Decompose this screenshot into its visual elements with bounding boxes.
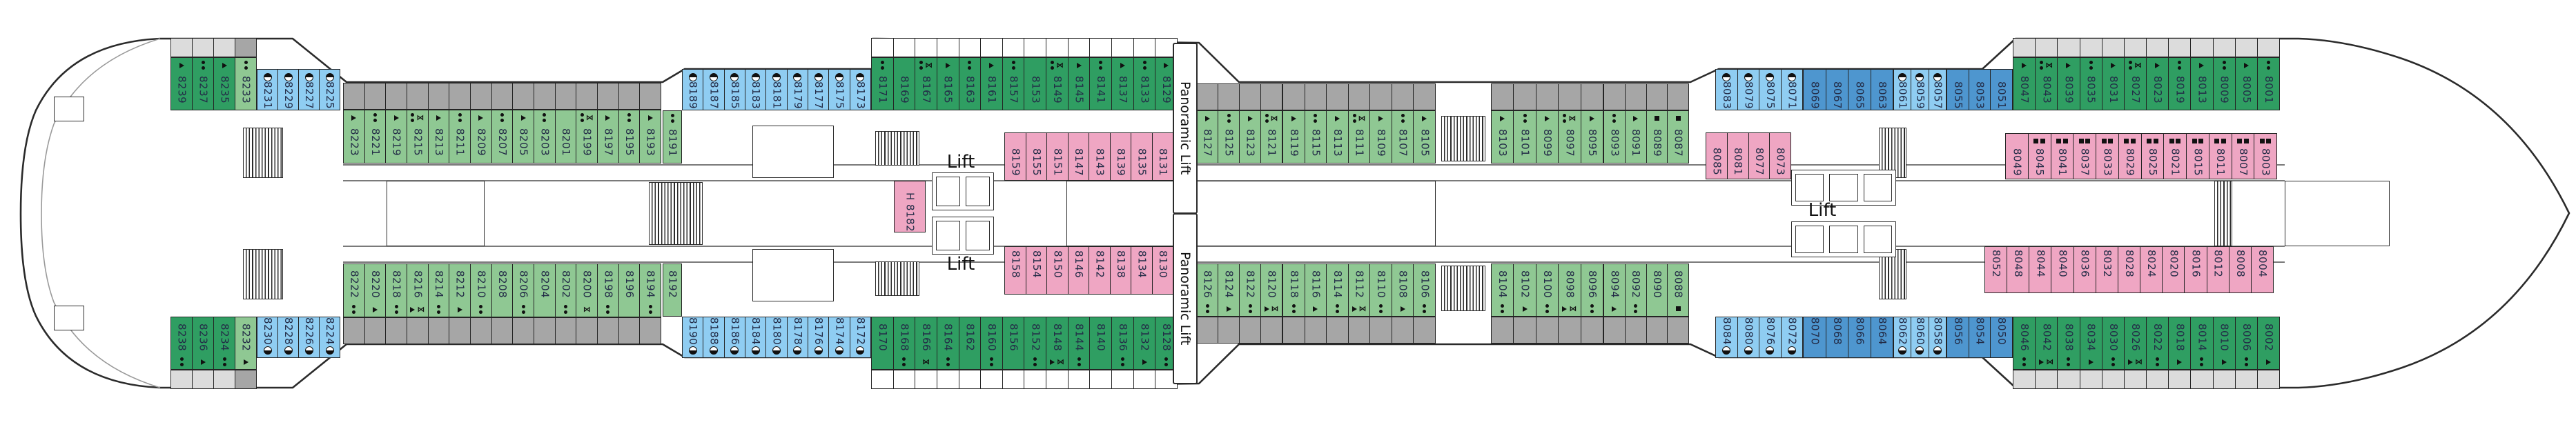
cabin-number: 8196 [624, 270, 634, 298]
cabin-8181[interactable]: 8181 [765, 70, 786, 110]
cabin-8094[interactable]: 8094 [1604, 264, 1625, 316]
cabin-8106[interactable]: 8106 [1413, 264, 1435, 316]
cabin-8079[interactable]: 8079 [1737, 70, 1759, 110]
cabin-8198[interactable]: 8198 [597, 264, 618, 317]
cabin-8002[interactable]: 8002 [2257, 317, 2279, 369]
connecting-doors-icon: ⋈ [586, 114, 594, 121]
cabin-8130[interactable]: 8130 [1152, 247, 1173, 294]
cabin-8091[interactable]: 8091 [1625, 111, 1646, 163]
cabin-8040[interactable]: 8040 [2051, 247, 2073, 292]
cabin-8118[interactable]: 8118 [1283, 264, 1305, 316]
cabin-8059[interactable]: 8059 [1911, 70, 1928, 110]
cabin-8225[interactable]: 8225 [319, 70, 340, 110]
cabin-number-wrap: 8138 [1115, 247, 1126, 282]
cabin-number-wrap: 8121 [1267, 123, 1277, 163]
cabin-8223[interactable]: 8223 [344, 110, 364, 163]
cabin-8124[interactable]: 8124 [1218, 264, 1239, 316]
cabin-8015[interactable]: 8015 [2186, 134, 2209, 179]
lift-shafts-icon [932, 217, 994, 255]
cabin-8211[interactable]: 8211 [449, 110, 470, 163]
cabin-8065[interactable]: 8065 [1848, 70, 1871, 110]
cabin-H8182[interactable]: H 8182 [895, 181, 925, 232]
cabin-8032[interactable]: 8032 [2096, 247, 2118, 292]
cabin-8029[interactable]: 8029 [2118, 134, 2141, 179]
stairs-icon [243, 128, 283, 178]
cabin-8145[interactable]: 8145 [1068, 58, 1090, 110]
cabin-8142[interactable]: 8142 [1089, 247, 1110, 294]
cabin-8189[interactable]: 8189 [683, 70, 703, 110]
cabin-number-wrap: 8055 [1953, 81, 1963, 110]
cabin-8195[interactable]: 8195 [618, 110, 640, 163]
balcony [639, 83, 661, 109]
cabin-8137[interactable]: 8137 [1111, 58, 1133, 110]
cabin-8135[interactable]: 8135 [1131, 133, 1152, 180]
cabin-8047[interactable]: 8047 [2013, 58, 2035, 110]
cabin-8150[interactable]: 8150 [1046, 247, 1068, 294]
cabin-8233[interactable]: 8233 [235, 58, 256, 110]
aft-top-balcony-cabins: 822382218219⋈821582138211820982078205820… [343, 110, 661, 163]
balcony [1239, 84, 1260, 110]
cabin-8051[interactable]: 8051 [1990, 70, 2012, 110]
cabin-8037[interactable]: 8037 [2073, 134, 2096, 179]
triangle-icon [1545, 116, 1550, 121]
balcony [980, 370, 1002, 388]
cabin-number: 8047 [2019, 76, 2029, 103]
cabin-8020[interactable]: 8020 [2162, 247, 2184, 292]
cabin-8092[interactable]: 8092 [1625, 264, 1646, 316]
cabin-8034[interactable]: 8034 [2080, 317, 2102, 369]
cabin-8231[interactable]: 8231 [257, 70, 277, 110]
balcony [1348, 317, 1370, 343]
cabin-number: 8133 [1140, 76, 1150, 103]
cabin-8224[interactable]: 8224 [319, 317, 340, 357]
cabin-8024[interactable]: 8024 [2140, 247, 2162, 292]
cabin-8229[interactable]: 8229 [277, 70, 298, 110]
cabin-8022[interactable]: 8022 [2146, 317, 2168, 369]
cabin-8131[interactable]: 8131 [1152, 133, 1173, 180]
cabin-8164[interactable]: 8164 [937, 317, 959, 369]
cabin-8202[interactable]: 8202 [555, 264, 576, 317]
cabin-8230[interactable]: 8230 [257, 317, 277, 357]
fwd-top-balcony-cabins-d: 8093809180898087 [1603, 110, 1689, 163]
cabin-8165[interactable]: 8165 [937, 58, 959, 110]
cabin-8084[interactable]: 8084 [1716, 317, 1737, 357]
cabin-8083[interactable]: 8083 [1716, 70, 1737, 110]
cabin-8163[interactable]: 8163 [959, 58, 981, 110]
cabin-8210[interactable]: 8210 [470, 264, 491, 317]
balcony [1536, 317, 1558, 343]
cabin-8179[interactable]: 8179 [787, 70, 808, 110]
cabin-8166[interactable]: 8166⋈ [915, 317, 937, 369]
two-dots-icon [606, 305, 609, 314]
cabin-8174[interactable]: 8174 [828, 317, 849, 357]
cabin-8097[interactable]: ⋈8097 [1558, 111, 1580, 163]
cabin-8067[interactable]: 8067 [1826, 70, 1848, 110]
cabin-8116[interactable]: 8116 [1305, 264, 1327, 316]
cabin-8226[interactable]: 8226 [298, 317, 319, 357]
cabin-8012[interactable]: 8012 [2207, 247, 2229, 292]
cabin-8183[interactable]: 8183 [745, 70, 765, 110]
cabin-8089[interactable]: 8089 [1646, 111, 1668, 163]
cabin-8212[interactable]: 8212 [449, 264, 470, 317]
cabin-number: 8227 [304, 81, 314, 109]
cabin-8218[interactable]: 8218 [385, 264, 407, 317]
cabin-8066[interactable]: 8066 [1848, 317, 1871, 357]
cabin-8035[interactable]: 8035 [2080, 58, 2102, 110]
cabin-8161[interactable]: 8161 [980, 58, 1002, 110]
cabin-8178[interactable]: 8178 [787, 317, 808, 357]
cabin-8076[interactable]: 8076 [1759, 317, 1781, 357]
cabin-8011[interactable]: 8011 [2209, 134, 2232, 179]
cabin-8200[interactable]: 8200⋈ [576, 264, 597, 317]
cabin-8019[interactable]: 8019 [2168, 58, 2190, 110]
cabin-8003[interactable]: 8003 [2254, 134, 2276, 179]
cabin-8023[interactable]: 8023 [2146, 58, 2168, 110]
cabin-8025[interactable]: 8025 [2141, 134, 2164, 179]
cabin-8055[interactable]: 8055 [1947, 70, 1969, 110]
cabin-8050[interactable]: 8050 [1990, 317, 2012, 357]
cabin-number: 8138 [1115, 250, 1126, 278]
cabin-8061[interactable]: 8061 [1894, 70, 1911, 110]
cabin-8090[interactable]: 8090 [1646, 264, 1668, 316]
cabin-8171[interactable]: 8171 [872, 58, 893, 110]
cabin-8109[interactable]: 8109 [1369, 111, 1392, 163]
cabin-8030[interactable]: 8030 [2102, 317, 2124, 369]
square-icon [1655, 116, 1659, 121]
cabin-8007[interactable]: 8007 [2232, 134, 2254, 179]
cabin-8186[interactable]: 8186 [724, 317, 745, 357]
cabin-8062[interactable]: 8062 [1894, 317, 1911, 357]
cabin-8196[interactable]: 8196 [618, 264, 640, 317]
cabin-icons [968, 61, 971, 70]
cabin-8041[interactable]: 8041 [2051, 134, 2074, 179]
cabin-number-wrap: 8036 [2080, 247, 2090, 281]
balcony [1492, 84, 1513, 110]
cabin-8122[interactable]: 8122 [1239, 264, 1260, 316]
cabin-8005[interactable]: 8005 [2235, 58, 2257, 110]
two-dots-icon [1379, 304, 1383, 313]
cabin-8013[interactable]: 8013 [2190, 58, 2212, 110]
cabin-8008[interactable]: 8008 [2229, 247, 2251, 292]
cabin-8009[interactable]: 8009 [2213, 58, 2235, 110]
cabin-8010[interactable]: 8010 [2213, 317, 2235, 369]
cabin-8110[interactable]: 8110 [1369, 264, 1392, 316]
cabin-number-wrap: 8115 [1310, 123, 1320, 163]
cabin-8121[interactable]: ⋈8121 [1260, 111, 1282, 163]
cabin-8156[interactable]: 8156 [1002, 317, 1024, 369]
cabin-8038[interactable]: 8038 [2057, 317, 2079, 369]
cabin-icons [1012, 61, 1015, 70]
cabin-number: 8058 [1932, 317, 1942, 345]
cabin-8068[interactable]: 8068 [1826, 317, 1848, 357]
cabin-number: 8070 [1809, 317, 1819, 345]
cabin-8172[interactable]: 8172 [850, 317, 870, 357]
cabin-number: 8198 [603, 270, 613, 298]
cabin-8064[interactable]: 8064 [1871, 317, 1893, 357]
cabin-8096[interactable]: 8096 [1581, 264, 1603, 316]
cabin-icons [835, 72, 843, 81]
two-dots-icon [411, 113, 414, 122]
cabin-8112[interactable]: 8112⋈ [1348, 264, 1370, 316]
cabin-8070[interactable]: 8070 [1804, 317, 1826, 357]
cabin-8139[interactable]: 8139 [1110, 133, 1131, 180]
cabin-8042[interactable]: 8042⋈ [2035, 317, 2057, 369]
fwd-bottom-balcony-cabins-c: 8104810281008098⋈8096 [1491, 264, 1603, 317]
balcony [491, 318, 513, 344]
cabin-8099[interactable]: 8099 [1536, 111, 1558, 163]
cabin-8149[interactable]: ⋈8149 [1046, 58, 1068, 110]
cabin-8205[interactable]: 8205 [512, 110, 534, 163]
cabin-8073[interactable]: 8073 [1769, 133, 1790, 179]
cabin-8085[interactable]: 8085 [1706, 133, 1727, 179]
cabin-8214[interactable]: 8214 [428, 264, 449, 317]
panoramic-lift-bottom-label: Panoramic Lift [1173, 213, 1198, 384]
cabin-icons [689, 346, 697, 355]
cabin-number: 8094 [1609, 270, 1619, 298]
cabin-8236[interactable]: 8236 [192, 317, 213, 369]
cabin-8077[interactable]: 8077 [1748, 133, 1770, 179]
cabin-8093[interactable]: 8093 [1604, 111, 1625, 163]
cabin-8203[interactable]: 8203 [534, 110, 555, 163]
cabin-8100[interactable]: 8100 [1536, 264, 1558, 316]
balcony [555, 83, 576, 109]
cabin-8054[interactable]: 8054 [1969, 317, 1991, 357]
cabin-number-wrap: 8031 [2108, 70, 2118, 110]
cabin-8157[interactable]: 8157 [1002, 58, 1024, 110]
cabin-8220[interactable]: 8220 [364, 264, 386, 317]
cabin-8057[interactable]: 8057 [1929, 70, 1946, 110]
cabin-8146[interactable]: 8146 [1068, 247, 1089, 294]
cabin-8027[interactable]: ⋈8027 [2124, 58, 2146, 110]
cabin-8095[interactable]: 8095 [1581, 111, 1603, 163]
cabin-number: 8034 [2086, 324, 2096, 351]
cabin-8194[interactable]: 8194 [639, 264, 661, 317]
cabin-8028[interactable]: 8028 [2118, 247, 2140, 292]
cabin-number-wrap: 8126 [1202, 264, 1213, 304]
cabin-8081[interactable]: 8081 [1727, 133, 1748, 179]
balcony [1197, 317, 1218, 343]
cabin-number: 8072 [1786, 317, 1797, 345]
cabin-8080[interactable]: 8080 [1737, 317, 1759, 357]
cabin-8001[interactable]: 8001 [2257, 58, 2279, 110]
cabin-8167[interactable]: ⋈8167 [915, 58, 937, 110]
cabin-8120[interactable]: 8120⋈ [1260, 264, 1282, 316]
two-dots-icon [1590, 304, 1594, 313]
cabin-8044[interactable]: 8044 [2029, 247, 2051, 292]
cabin-8021[interactable]: 8021 [2163, 134, 2186, 179]
cabin-icons [2169, 137, 2181, 146]
cabin-8168[interactable]: 8168 [893, 317, 915, 369]
cabin-icons [437, 305, 440, 314]
two-dots-icon [671, 114, 674, 123]
cabin-number: 8237 [198, 76, 208, 103]
cabin-8154[interactable]: 8154 [1026, 247, 1047, 294]
cabin-8185[interactable]: 8185 [724, 70, 745, 110]
cabin-8151[interactable]: 8151 [1046, 133, 1068, 180]
balcony [534, 83, 555, 109]
cabin-8206[interactable]: 8206 [512, 264, 534, 317]
cabin-8237[interactable]: 8237 [192, 58, 213, 110]
cabin-8201[interactable]: 8201 [555, 110, 576, 163]
cabin-8119[interactable]: 8119 [1283, 111, 1305, 163]
cabin-number: 8016 [2190, 250, 2201, 277]
cabin-8136[interactable]: 8136 [1111, 317, 1133, 369]
cabin-8160[interactable]: 8160 [980, 317, 1002, 369]
cabin-number: 8209 [476, 128, 486, 156]
cabin-8043[interactable]: ⋈8043 [2035, 58, 2057, 110]
cabin-8036[interactable]: 8036 [2074, 247, 2096, 292]
cabin-number: 8131 [1158, 148, 1168, 176]
cabin-8143[interactable]: 8143 [1089, 133, 1110, 180]
cabin-8060[interactable]: 8060 [1911, 317, 1928, 357]
cabin-icons [671, 114, 674, 123]
cabin-8105[interactable]: 8105 [1413, 111, 1435, 163]
cabin-8052[interactable]: 8052 [1985, 247, 2007, 292]
cabin-8014[interactable]: 8014 [2190, 317, 2212, 369]
cabin-8176[interactable]: 8176 [808, 317, 828, 357]
cabin-8006[interactable]: 8006 [2235, 317, 2257, 369]
cabin-8004[interactable]: 8004 [2251, 247, 2273, 292]
cabin-number: 8100 [1542, 270, 1552, 298]
cabin-8141[interactable]: 8141 [1089, 58, 1111, 110]
cabin-8114[interactable]: 8114 [1326, 264, 1348, 316]
cabin-8170[interactable]: 8170 [872, 317, 893, 369]
cabin-8152[interactable]: 8152 [1024, 317, 1046, 369]
cabin-8169[interactable]: 8169 [893, 58, 915, 110]
cabin-8148[interactable]: 8148⋈ [1046, 317, 1068, 369]
cabin-8058[interactable]: 8058 [1929, 317, 1946, 357]
cabin-8239[interactable]: 8239 [171, 58, 192, 110]
cabin-8144[interactable]: 8144 [1068, 317, 1090, 369]
cabin-icons: ⋈ [1051, 61, 1064, 70]
connecting-doors-icon: ⋈ [2046, 358, 2053, 366]
cabin-8016[interactable]: 8016 [2184, 247, 2206, 292]
cabin-8087[interactable]: 8087 [1667, 111, 1688, 163]
cabin-8207[interactable]: 8207 [491, 110, 513, 163]
cabin-8199[interactable]: ⋈8199 [576, 110, 597, 163]
cabin-8227[interactable]: 8227 [298, 70, 319, 110]
cabin-8046[interactable]: 8046 [2013, 317, 2035, 369]
cabin-8216[interactable]: 8216⋈ [407, 264, 428, 317]
cabin-number: 8075 [1765, 81, 1775, 109]
cabin-8153[interactable]: 8153 [1024, 58, 1046, 110]
cabin-8113[interactable]: 8113 [1326, 111, 1348, 163]
cabin-8175[interactable]: 8175 [828, 70, 849, 110]
cabin-8088[interactable]: 8088 [1667, 264, 1688, 316]
cabin-8190[interactable]: 8190 [683, 317, 703, 357]
cabin-8031[interactable]: 8031 [2102, 58, 2124, 110]
cabin-8018[interactable]: 8018 [2168, 317, 2190, 369]
cabin-number-wrap: 8173 [855, 81, 866, 110]
cabin-8235[interactable]: 8235 [213, 58, 235, 110]
cabin-8071[interactable]: 8071 [1781, 70, 1803, 110]
two-dots-icon [1401, 114, 1405, 123]
cabin-8026[interactable]: 8026⋈ [2124, 317, 2146, 369]
cabin-8219[interactable]: 8219 [385, 110, 407, 163]
cabin-number: 8177 [813, 81, 823, 109]
cabin-number: 8238 [177, 324, 187, 351]
cabin-8208[interactable]: 8208 [491, 264, 513, 317]
cabin-8056[interactable]: 8056 [1947, 317, 1969, 357]
cabin-8132[interactable]: 8132 [1133, 317, 1155, 369]
cabin-8103[interactable]: 8103 [1492, 111, 1513, 163]
cabin-8234[interactable]: 8234 [213, 317, 235, 369]
cabin-8184[interactable]: 8184 [745, 317, 765, 357]
cabin-8193[interactable]: 8193 [639, 110, 661, 163]
cabin-8159[interactable]: 8159 [1005, 133, 1026, 180]
cabin-8213[interactable]: 8213 [428, 110, 449, 163]
cabin-icons: ⋈ [1352, 304, 1367, 313]
cabin-8133[interactable]: 8133 [1133, 58, 1155, 110]
cabin-8204[interactable]: 8204 [534, 264, 555, 317]
cabin-8191[interactable]: 8191 [663, 111, 681, 163]
cabin-8069[interactable]: 8069 [1804, 70, 1826, 110]
cabin-number-wrap: 8145 [1074, 70, 1084, 110]
cabin-8104[interactable]: 8104 [1492, 264, 1513, 316]
cabin-8221[interactable]: 8221 [364, 110, 386, 163]
cabin-8134[interactable]: 8134 [1131, 247, 1152, 294]
cabin-8158[interactable]: 8158 [1005, 247, 1026, 294]
cabin-8098[interactable]: 8098⋈ [1558, 264, 1580, 316]
cabin-8045[interactable]: 8045 [2028, 134, 2051, 179]
cabin-8192[interactable]: 8192 [663, 264, 681, 316]
cabin-8215[interactable]: ⋈8215 [407, 110, 428, 163]
cabin-8238[interactable]: 8238 [171, 317, 192, 369]
cabin-8048[interactable]: 8048 [2007, 247, 2029, 292]
cabin-8111[interactable]: ⋈8111 [1348, 111, 1370, 163]
cabin-8173[interactable]: 8173 [850, 70, 870, 110]
cabin-8197[interactable]: 8197 [597, 110, 618, 163]
cabin-8108[interactable]: 8108 [1392, 264, 1414, 316]
cabin-8177[interactable]: 8177 [808, 70, 828, 110]
cabin-8075[interactable]: 8075 [1759, 70, 1781, 110]
cabin-8162[interactable]: 8162 [959, 317, 981, 369]
cabin-8138[interactable]: 8138 [1110, 247, 1131, 294]
cabin-8187[interactable]: 8187 [703, 70, 723, 110]
cabin-8228[interactable]: 8228 [277, 317, 298, 357]
cabin-8155[interactable]: 8155 [1026, 133, 1047, 180]
cabin-8049[interactable]: 8049 [2006, 134, 2028, 179]
cabin-8123[interactable]: 8123 [1239, 111, 1260, 163]
cabin-8107[interactable]: 8107 [1392, 111, 1414, 163]
cabin-8053[interactable]: 8053 [1969, 70, 1991, 110]
cabin-number-wrap: 8152 [1030, 317, 1040, 357]
cabin-number-wrap: 8184 [750, 317, 761, 346]
cabin-8147[interactable]: 8147 [1068, 133, 1089, 180]
cabin-8101[interactable]: 8101 [1513, 111, 1535, 163]
cabin-number-wrap: 8229 [283, 81, 293, 110]
cabin-8125[interactable]: 8125 [1218, 111, 1239, 163]
cabin-8102[interactable]: 8102 [1513, 264, 1535, 316]
triangle-icon [1633, 116, 1638, 121]
cabin-8209[interactable]: 8209 [470, 110, 491, 163]
cabin-8072[interactable]: 8072 [1781, 317, 1803, 357]
cabin-number-wrap: 8180 [771, 317, 781, 346]
cabin-8127[interactable]: 8127 [1197, 111, 1218, 163]
cabin-8126[interactable]: 8126 [1197, 264, 1218, 316]
cabin-8039[interactable]: 8039 [2057, 58, 2079, 110]
cabin-8140[interactable]: 8140 [1089, 317, 1111, 369]
cabin-8033[interactable]: 8033 [2096, 134, 2118, 179]
cabin-number-wrap: 8205 [518, 122, 529, 163]
cabin-8188[interactable]: 8188 [703, 317, 723, 357]
cabin-8232[interactable]: 8232 [235, 317, 256, 369]
cabin-8222[interactable]: 8222 [344, 264, 364, 317]
cabin-number-wrap: 8103 [1497, 123, 1507, 163]
cabin-8180[interactable]: 8180 [765, 317, 786, 357]
cabin-8115[interactable]: 8115 [1305, 111, 1327, 163]
cabin-8063[interactable]: 8063 [1871, 70, 1893, 110]
